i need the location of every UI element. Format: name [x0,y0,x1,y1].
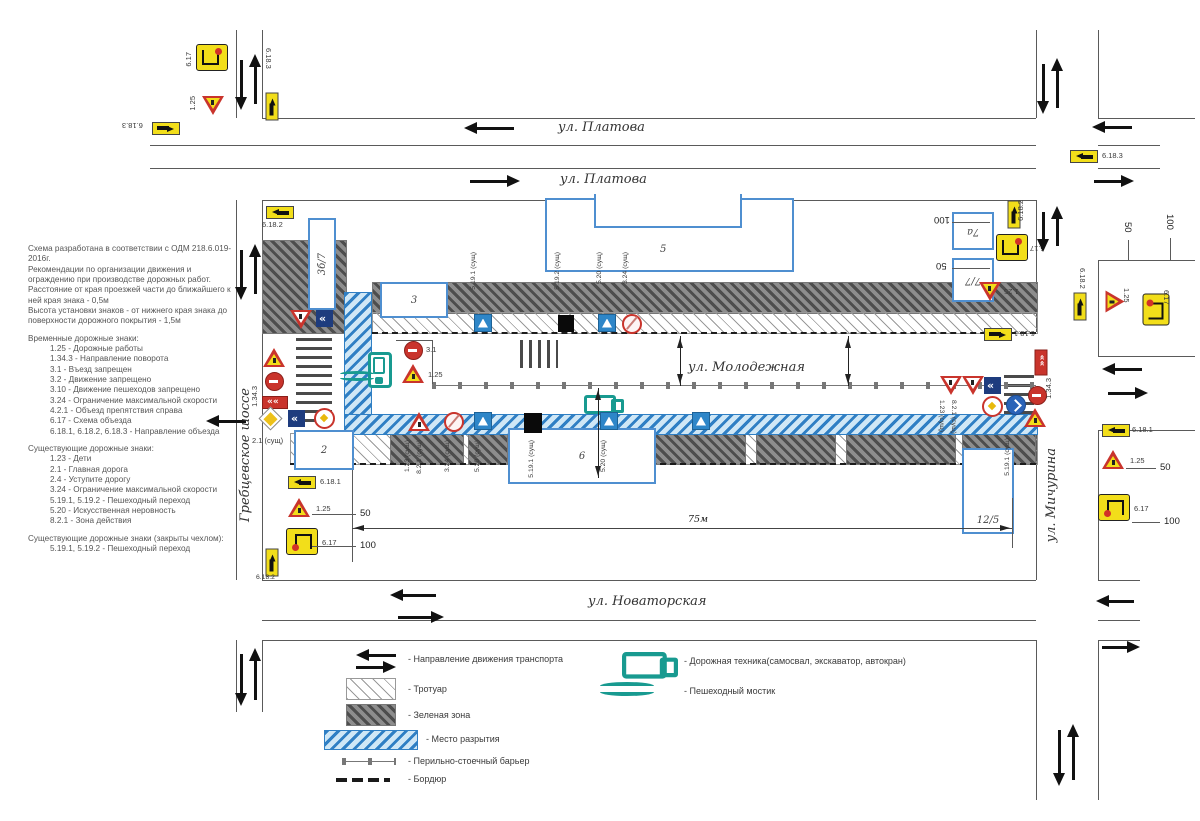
sign-617-detour-scheme [196,44,228,71]
road-edge [262,580,1036,581]
sign-125-roadworks [402,364,424,383]
traffic-arrow-left [1098,126,1132,129]
sidewalk-hatch-icon [346,678,396,700]
road-edge [262,620,1036,621]
sign-label: 6.18.1 [320,477,341,486]
traffic-arrow-up [1056,212,1059,246]
notes-block: Схема разработана в соответствии с ОДМ 2… [28,244,238,554]
post-barrier-icon [342,758,396,765]
dim-value: 100 [1164,516,1180,527]
sign-label: 6.18.3 [122,121,143,130]
sidewalk [372,312,1038,334]
road-edge [1098,640,1099,800]
sign-1343-turn-direction [1035,350,1048,376]
sign-label: 6.18.1 [1014,329,1035,338]
road-edge [262,640,263,712]
sign-label: 5.19.1 (сущ) [1004,438,1011,476]
dim-extension [352,470,353,562]
street-name-molodezhnaya: ул. Молодежная [688,360,805,375]
sign-label: 1.25 [1122,288,1131,303]
sign-519-crosswalk [598,314,616,332]
building-2: 2 [294,430,354,470]
sign-label: 6.18.2 [256,574,275,581]
building-number: 3б/7 [317,253,328,275]
note-line: Высота установки знаков - от нижнего кра… [28,306,238,327]
crosswalk [520,340,558,368]
temp-sign-item: 3.1 - Въезд запрещен [28,365,238,375]
building-number: 5 [660,244,666,255]
sign-detour-chevron [984,377,1001,394]
sign-label: 2.1 (сущ) [252,436,283,445]
exist-sign-item: 1.23 - Дети [28,454,238,464]
building-7a: 7а [952,212,994,250]
traffic-arrow-right [398,616,438,619]
sign-label: 6.18.2 [1078,268,1087,289]
street-name-michurina: ул. Мичурина [1044,448,1059,542]
dim-value: 75м [688,514,708,525]
dim-line [312,514,356,515]
exist-sign-item: 3.24 - Ограничение максимальной скорости [28,485,238,495]
legend-label: - Пешеходный мостик [684,686,775,696]
sign-label: 8.2.1 (сущ) [950,400,957,434]
dim-line [1126,468,1156,469]
traffic-arrow-up [254,654,257,700]
sign-label: 5.20 (сущ) [474,440,481,472]
traffic-arrow-left [470,127,514,130]
sign-421-pass-right [1006,395,1026,415]
exist-sign-item: 2.1 - Главная дорога [28,465,238,475]
note-line: Расстояние от края проезжей части до бли… [28,285,238,306]
traffic-arrow-down [240,250,243,294]
note-line: Схема разработана в соответствии с ОДМ 2… [28,244,238,265]
sign-label: 6.18.2 [262,220,283,229]
median-line [1098,168,1160,169]
patch-square [524,413,542,433]
sign-detour-chevron [288,410,305,427]
dim-line [1128,240,1129,260]
road-edge [1036,640,1037,800]
sign-inner [292,504,306,515]
temp-sign-item: 3.10 - Движение пешеходов запрещено [28,385,238,395]
temp-sign-item: 1.34.3 - Направление поворота [28,354,238,364]
sign-label: 1.34.3 [1044,378,1053,399]
road-edge [1098,356,1195,357]
sign-519-crosswalk [600,412,618,430]
sign-label: 1.23 (сущ) [938,400,945,432]
green-zone [756,433,836,465]
curb-icon [336,778,390,782]
street-name-grebtsevskoe: Гребцевское шоссе [238,388,253,522]
sign-125-roadworks [263,348,285,367]
green-zone [652,433,746,465]
exist-signs-header: Существующие дорожные знаки: [28,444,238,454]
exist-sign-item: 2.4 - Уступите дорогу [28,475,238,485]
sign-label: 5.19.2 (сущ) [554,252,561,290]
sign-label: 3.1 [426,345,436,354]
road-edge [1098,260,1099,356]
building-3b7: 3б/7 [308,218,336,310]
sign-6181-detour-direction [984,328,1012,341]
excavation-hatch-icon [324,730,418,750]
sign-label: 6.17 [1134,504,1149,513]
building-number: 12/5 [977,515,999,526]
temp-sign-item: 6.18.1, 6.18.2, 6.18.3 - Направление объ… [28,427,238,437]
direction-arrow-icon [362,654,396,657]
median-line [150,145,1036,146]
dim-extension [1012,498,1013,548]
traffic-arrow-down [1042,64,1045,108]
temp-sign-item: 3.2 - Движение запрещено [28,375,238,385]
building-number: 7/7 [965,275,981,286]
legend-label: - Место разрытия [426,734,500,744]
lane-width-dim [680,336,681,386]
road-edge [1098,620,1140,621]
sign-label: 6.17 [184,52,193,67]
legend-label: - Бордюр [408,774,446,784]
road-edge [1098,118,1195,119]
dim-75m [352,528,1012,529]
street-name-novatorskaya: ул. Новаторская [588,594,706,609]
traffic-arrow-up [1072,730,1075,780]
dim-value: 100 [934,214,950,225]
sign-125-roadworks [1102,450,1124,469]
sign-inner [267,354,281,365]
dim-line [952,222,990,223]
sign-617-detour-scheme [1098,494,1130,521]
green-zone [390,433,464,465]
sign-label: 6.18.2 [1016,200,1025,221]
covered-signs-header: Существующие дорожные знаки (закрыты чех… [28,534,238,544]
street-name-platova-upper: ул. Платова [558,120,645,135]
sign-label: 6.17 [1162,290,1171,305]
sign-label: 5.19.1 (сущ) [470,252,477,290]
curb-line [290,463,1036,465]
sign-label: 1.25 [428,370,443,379]
legend-label: - Направление движения транспорта [408,654,563,664]
road-edge [262,30,263,118]
road-machinery-icon [622,652,667,679]
curb-line [372,332,1036,334]
traffic-arrow-down [1042,212,1045,246]
sign-inner [206,98,220,109]
temp-sign-item: 3.24 - Ограничение максимальной скорости [28,396,238,406]
sign-125-roadworks [202,96,224,115]
road-edge [236,200,237,580]
traffic-arrow-down [240,654,243,700]
traffic-arrow-right [1102,646,1134,649]
traffic-arrow-up [254,250,257,294]
traffic-arrow-left [1102,600,1134,603]
road-edge [1098,30,1099,118]
sign-324-covered [622,314,642,334]
sign-519-crosswalk [474,314,492,332]
green-zone [846,433,956,465]
sign-6183-detour-direction [1070,150,1098,163]
legend-label: - Тротуар [408,684,447,694]
sign-1343-turn-direction [262,396,288,409]
covered-sign-item: 5.19.1, 5.19.2 - Пешеходный переход [28,544,238,554]
exist-sign-item: 5.19.1, 5.19.2 - Пешеходный переход [28,496,238,506]
road-edge [262,118,1036,119]
sign-125-roadworks [288,498,310,517]
median-line [1098,145,1160,146]
road-edge [1098,580,1140,581]
sign-520-hump [982,396,1003,417]
traffic-scheme-canvas: Схема разработана в соответствии с ОДМ 2… [0,0,1200,821]
patch-square [558,315,574,332]
dim-line [1170,238,1171,260]
dim-value: 50 [1122,222,1133,233]
sign-519-crosswalk [474,412,492,430]
dim-line [1132,522,1160,523]
traffic-arrow-right [1094,180,1128,183]
sign-label: 5.20 (сущ) [596,252,603,284]
legend-label: - Зеленая зона [408,710,470,720]
traffic-arrow-left [396,594,436,597]
building-3: 3 [380,282,448,318]
traffic-arrow-left [1108,368,1142,371]
sign-519-crosswalk [692,412,710,430]
dim-value: 100 [360,540,376,551]
direction-arrow-icon [356,666,390,669]
building-number: 7а [967,226,979,237]
legend-label: - Дорожная техника(самосвал, экскаватор,… [684,656,906,666]
road-edge [1098,260,1195,261]
sign-31-no-entry [265,372,284,391]
sign-label: 1.23 (сущ) [404,440,411,472]
traffic-arrow-up [1056,64,1059,108]
temp-sign-item: 1.25 - Дорожные работы [28,344,238,354]
sign-617-detour-scheme [286,528,318,555]
sign-6182-detour-direction [266,206,294,219]
note-line: Рекомендации по организации движения и о… [28,265,238,286]
dim-value: 50 [360,508,371,519]
sign-31-no-entry [404,341,423,360]
green-zone-hatch-icon [346,704,396,726]
traffic-arrow-up [254,60,257,104]
road-edge [262,640,1036,641]
sign-label: 1.25 [1004,287,1019,296]
legend-label: - Перильно-стоечный барьер [408,756,529,766]
dim-line [952,268,990,269]
traffic-arrow-right [470,180,514,183]
dim-value: 50 [1160,462,1171,473]
sign-label: 5.20 (сущ) [600,440,607,472]
sign-520-hump [314,408,335,429]
sign-324-covered [444,412,464,432]
legend: - Направление движения транспорта - Трот… [300,644,1000,794]
dim-line [312,546,356,547]
sign-detour-chevron [316,310,333,327]
sign-label: 1.25 [188,96,197,111]
sign-6181-detour-direction [1102,424,1130,437]
exist-sign-item: 8.2.1 - Зона действия [28,516,238,526]
sign-label: 1.25 [1130,456,1145,465]
street-name-platova-lower: ул. Платова [560,172,647,187]
lane-width-dim [848,336,849,386]
sign-6183-detour-direction [266,93,279,121]
median-line [150,168,1036,169]
traffic-arrow-right [1108,392,1142,395]
road-width-dim [598,388,599,478]
sign-label: 3.24 (сущ) [444,440,451,472]
pedestrian-bridge-icon [340,370,374,382]
building-number: 6 [579,451,585,462]
sign-6182-detour-direction [1074,293,1087,321]
sign-label: 5.19.1 (сущ) [528,440,535,478]
building-number: 2 [321,445,327,456]
sign-label: 6.18.1 [1132,425,1153,434]
traffic-arrow-down [240,60,243,104]
sign-label: 8.2.1 (сущ) [416,440,423,474]
dim-value: 100 [1164,214,1175,230]
building-5-notch [594,194,742,228]
exist-sign-item: 5.20 - Искусственная неровность [28,506,238,516]
sign-inner [1108,295,1119,309]
sign-label: 6.18.3 [1102,151,1123,160]
sign-label: 6.18.3 [264,48,273,69]
sign-617-detour-scheme [996,234,1028,261]
sign-6181-detour-direction [288,476,316,489]
sign-inner [1106,456,1120,467]
building-number: 3 [411,295,417,306]
dim-value: 50 [936,260,947,271]
sign-6182-detour-direction [266,549,279,577]
pedestrian-bridge-icon [600,680,654,698]
temp-signs-header: Временные дорожные знаки: [28,334,238,344]
traffic-arrow-down [1058,730,1061,780]
sign-label: 1.25 [316,504,331,513]
sign-label: 3.24 (сущ) [622,252,629,284]
sign-inner [406,370,420,381]
sign-6183-detour-direction [152,122,180,135]
